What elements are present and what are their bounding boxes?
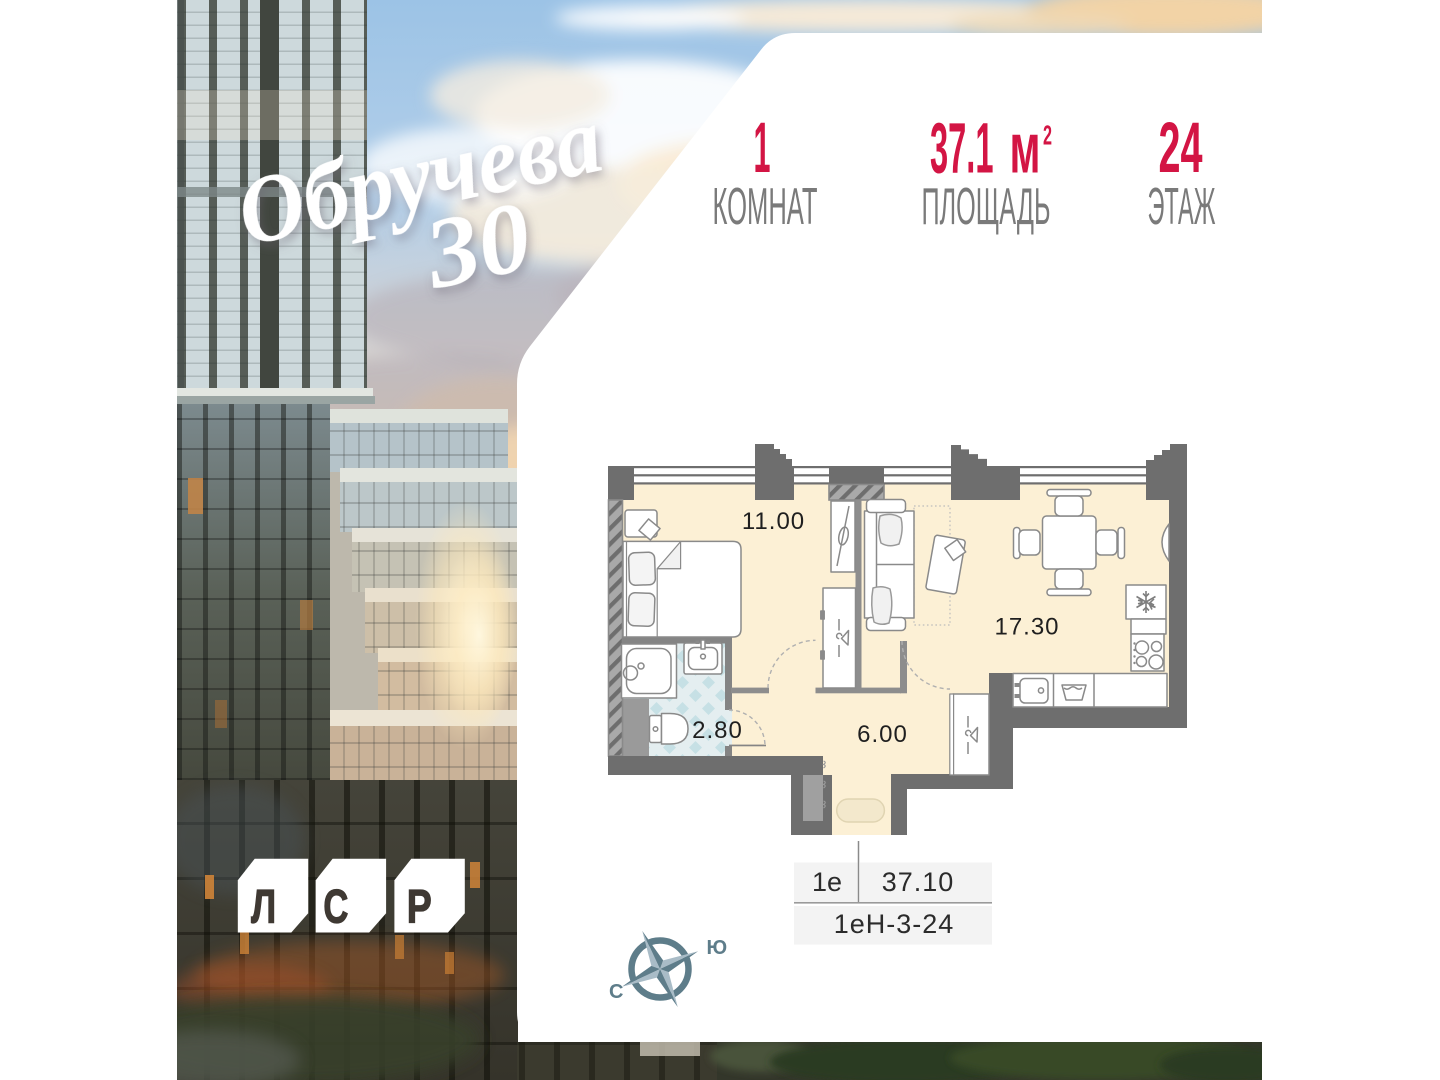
- svg-text:2: 2: [1043, 120, 1052, 151]
- svg-text:м: м: [1010, 110, 1041, 189]
- svg-text:6.00: 6.00: [857, 721, 908, 748]
- svg-text:С: С: [323, 880, 348, 933]
- svg-text:ПЛОЩАДЬ: ПЛОЩАДЬ: [922, 178, 1051, 236]
- svg-text:37.10: 37.10: [882, 867, 955, 897]
- svg-text:С: С: [609, 981, 623, 1003]
- svg-text:1еН-3-24: 1еН-3-24: [834, 909, 955, 939]
- svg-text:11.00: 11.00: [742, 508, 805, 535]
- svg-text:ЭТАЖ: ЭТАЖ: [1148, 178, 1216, 236]
- svg-text:Л: Л: [251, 880, 276, 933]
- svg-text:24: 24: [1159, 109, 1203, 188]
- svg-text:КОМНАТ: КОМНАТ: [713, 178, 818, 236]
- svg-text:2.80: 2.80: [692, 717, 743, 744]
- svg-text:37.1: 37.1: [930, 110, 994, 189]
- svg-text:1: 1: [754, 109, 771, 188]
- svg-text:Р: Р: [407, 880, 432, 933]
- svg-text:Ю: Ю: [707, 937, 728, 959]
- svg-text:1е: 1е: [812, 867, 842, 897]
- svg-text:17.30: 17.30: [994, 614, 1059, 641]
